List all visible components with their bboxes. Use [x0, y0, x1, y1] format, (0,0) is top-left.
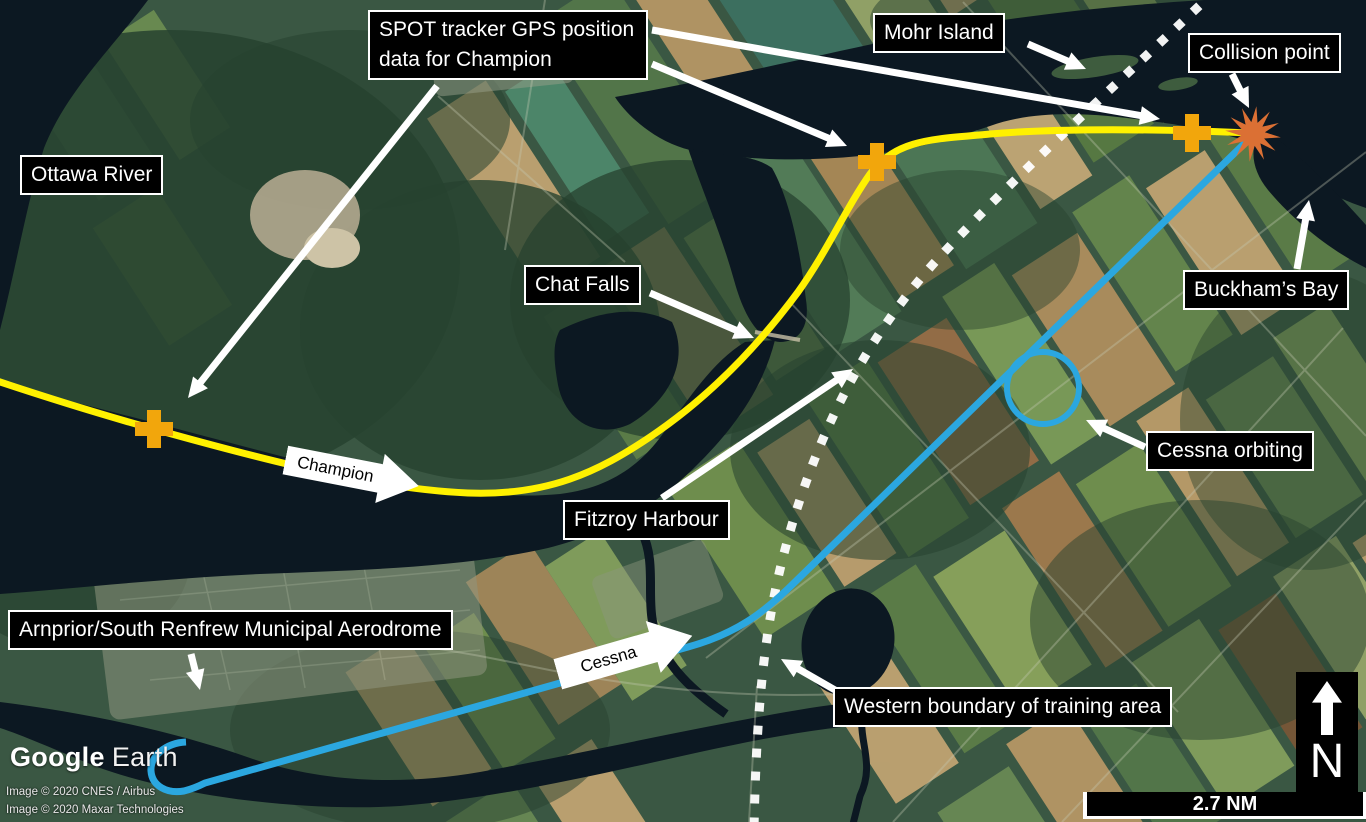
north-indicator: N [1296, 672, 1358, 793]
label-mohr-island: Mohr Island [873, 13, 1005, 53]
north-label: N [1310, 735, 1345, 789]
label-ottawa-river: Ottawa River [20, 155, 163, 195]
label-aerodrome: Arnprior/South Renfrew Municipal Aerodro… [8, 610, 453, 650]
scale-bar: 2.7 NM [1083, 792, 1366, 819]
logo-earth: Earth [112, 742, 178, 772]
spot-tracker-cross-marker [135, 410, 173, 448]
label-collision-point: Collision point [1188, 33, 1341, 73]
label-cessna-orbiting: Cessna orbiting [1146, 431, 1314, 471]
logo-google: Google [10, 742, 105, 772]
north-arrow-icon [1312, 681, 1342, 735]
annotation-arrowhead [1296, 200, 1315, 221]
annotation-arrow [191, 654, 195, 672]
cessna-orbit-circle [1007, 352, 1079, 424]
map-figure: SPOT tracker GPS position data for Champ… [0, 0, 1366, 822]
annotation-arrow [1232, 74, 1241, 91]
imagery-attribution-2: Image © 2020 Maxar Technologies [6, 804, 184, 816]
annotation-arrow [1297, 219, 1306, 269]
annotation-arrow [652, 64, 829, 139]
annotation-arrow [1103, 428, 1145, 447]
label-buckhams-bay: Buckham’s Bay [1183, 270, 1349, 310]
annotation-arrow [650, 293, 737, 330]
annotation-arrowhead [186, 668, 204, 690]
label-chat-falls: Chat Falls [524, 265, 641, 305]
label-fitzroy-harbour: Fitzroy Harbour [563, 500, 730, 540]
scale-label: 2.7 NM [1193, 793, 1257, 816]
annotation-arrow [200, 86, 437, 383]
label-western-boundary: Western boundary of training area [833, 687, 1172, 727]
google-earth-logo: GoogleEarth [10, 742, 178, 773]
spot-tracker-cross-marker [1173, 114, 1211, 152]
annotation-arrow [1028, 44, 1069, 61]
spot-tracker-cross-marker [858, 143, 896, 181]
imagery-attribution-1: Image © 2020 CNES / Airbus [6, 786, 155, 798]
label-spot-tracker: SPOT tracker GPS position data for Champ… [368, 10, 648, 80]
annotation-arrowhead [1139, 106, 1160, 125]
champion-flight-path [0, 130, 1250, 494]
